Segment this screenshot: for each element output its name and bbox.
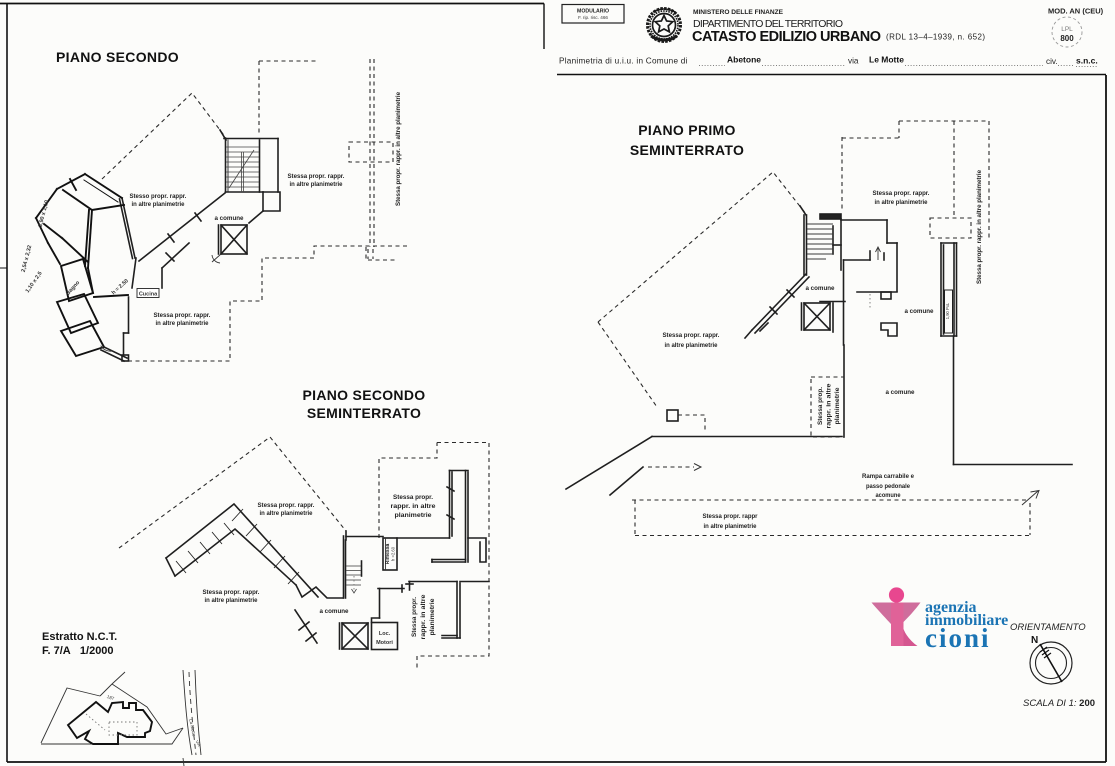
svg-text:F. 7/A 1/2000: F. 7/A 1/2000 [42, 645, 114, 657]
svg-text:Motori: Motori [376, 640, 393, 646]
svg-text:Stessa propr. rappr.: Stessa propr. rappr. [154, 312, 211, 319]
svg-text:PIANO SECONDO: PIANO SECONDO [303, 387, 426, 403]
svg-text:a comune: a comune [215, 215, 245, 222]
svg-text:Stessa propr. rappr.: Stessa propr. rappr. [663, 332, 720, 339]
svg-text:in altre planimetrie: in altre planimetrie [704, 523, 758, 530]
svg-text:CATASTO EDILIZIO URBANO: CATASTO EDILIZIO URBANO [692, 29, 881, 45]
svg-text:civ.: civ. [1046, 57, 1058, 66]
svg-text:ORIENTAMENTO: ORIENTAMENTO [1010, 622, 1086, 633]
svg-text:SEMINTERRATO: SEMINTERRATO [307, 405, 421, 421]
svg-text:in altre planimetrie: in altre planimetrie [290, 181, 344, 188]
svg-text:via: via [848, 57, 859, 66]
svg-text:Stessa propr.: Stessa propr. [411, 597, 418, 637]
svg-text:SCALA DI 1: 200: SCALA DI 1: 200 [1023, 698, 1095, 709]
svg-text:rappr. in altre: rappr. in altre [420, 594, 427, 640]
svg-text:in altre planimetrie: in altre planimetrie [665, 342, 719, 349]
svg-text:planimetrie: planimetrie [834, 387, 841, 425]
svg-text:Stessa propr. rappr: Stessa propr. rappr [703, 513, 759, 520]
svg-text:Abetone: Abetone [727, 55, 761, 65]
svg-text:1,90 PxL: 1,90 PxL [945, 302, 950, 319]
svg-text:PIANO PRIMO: PIANO PRIMO [638, 122, 735, 138]
svg-text:h =2.60: h =2.60 [391, 546, 396, 561]
svg-text:Stessa propr. rappr.: Stessa propr. rappr. [203, 589, 260, 596]
svg-text:cioni: cioni [925, 623, 991, 653]
svg-text:Stessa propr. rappr.: Stessa propr. rappr. [873, 190, 930, 197]
svg-text:LPL: LPL [1061, 26, 1073, 33]
svg-text:Stessa prop.: Stessa prop. [817, 387, 824, 425]
svg-text:(RDL 13–4–1939, n. 652): (RDL 13–4–1939, n. 652) [886, 33, 985, 42]
svg-text:F. rip. risc. 466: F. rip. risc. 466 [578, 15, 608, 20]
svg-text:Stessa propr. rappr.: Stessa propr. rappr. [258, 502, 315, 509]
svg-text:Stessa propr. rappr. in altre: Stessa propr. rappr. in altre planimetri… [395, 91, 402, 206]
svg-text:in altre planimetrie: in altre planimetrie [205, 597, 259, 604]
svg-text:MODULARIO: MODULARIO [577, 9, 609, 15]
svg-text:a comune: a comune [886, 389, 916, 396]
svg-text:rappr. in altre: rappr. in altre [391, 503, 437, 510]
svg-text:in altre planimetrie: in altre planimetrie [875, 199, 929, 206]
svg-text:PIANO SECONDO: PIANO SECONDO [56, 49, 179, 65]
svg-text:MOD. AN (CEU): MOD. AN (CEU) [1048, 7, 1104, 16]
svg-text:Stessa propr.: Stessa propr. [393, 494, 433, 501]
svg-text:planimetrie: planimetrie [429, 598, 436, 636]
svg-text:N: N [1031, 635, 1038, 646]
svg-text:Estratto N.C.T.: Estratto N.C.T. [42, 631, 117, 643]
svg-text:Loc.: Loc. [379, 631, 391, 637]
svg-text:Planimetria di u.i.u. in C: Planimetria di u.i.u. in Comune di [559, 57, 688, 66]
svg-text:in altre planimetrie: in altre planimetrie [260, 510, 314, 517]
svg-text:800: 800 [1060, 34, 1074, 43]
svg-text:a comune: a comune [806, 285, 836, 292]
svg-text:MINISTERO DELLE FINANZE: MINISTERO DELLE FINANZE [693, 9, 784, 16]
svg-text:passo pedonale: passo pedonale [866, 483, 911, 490]
svg-text:acomune: acomune [876, 492, 902, 499]
svg-text:in altre planimetrie: in altre planimetrie [156, 320, 210, 327]
svg-text:Stessa propr. rappr.: Stessa propr. rappr. [288, 173, 345, 180]
svg-text:Rampa carrabile e: Rampa carrabile e [862, 473, 915, 480]
svg-text:planimetrie: planimetrie [395, 512, 433, 519]
svg-text:rappr. in altre: rappr. in altre [826, 383, 833, 429]
svg-text:Le Motte: Le Motte [869, 55, 904, 65]
svg-text:Cucina: Cucina [139, 292, 158, 298]
svg-text:SEMINTERRATO: SEMINTERRATO [630, 142, 744, 158]
svg-text:a comune: a comune [905, 308, 935, 315]
svg-text:Stesso propr. rappr.: Stesso propr. rappr. [130, 193, 187, 200]
svg-text:a comune: a comune [320, 608, 350, 615]
svg-text:Stessa propr. rappr. in altre: Stessa propr. rappr. in altre planimetri… [976, 169, 983, 284]
svg-text:in altre planimetrie: in altre planimetrie [132, 201, 186, 208]
svg-text:s.n.c.: s.n.c. [1076, 56, 1098, 66]
